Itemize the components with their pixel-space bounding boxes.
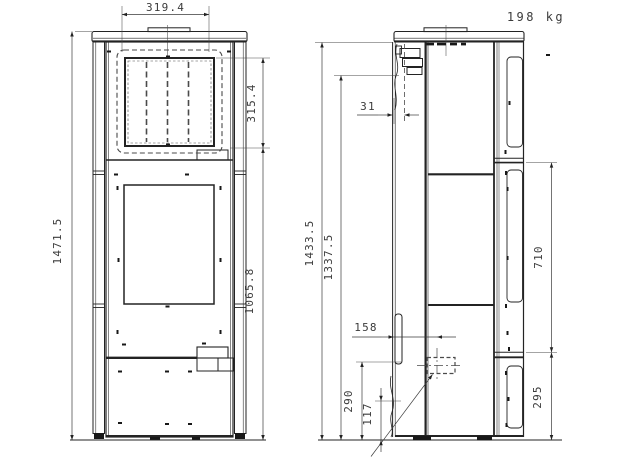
front-right-foot [235, 433, 245, 439]
front-dimensions: 319.4 315.4 1065.8 1471.5 [51, 1, 270, 440]
rear-connector-mid [403, 59, 423, 67]
front-glass-window [125, 58, 214, 146]
dim-side-body-height: 1433.5 [303, 220, 316, 267]
dim-front-overall-height: 1471.5 [51, 218, 64, 265]
front-view [70, 25, 266, 440]
rear-duct [395, 314, 402, 364]
technical-drawing-sheet: 319.4 315.4 1065.8 1471.5 [0, 0, 624, 460]
rear-connector-bottom [407, 68, 422, 75]
front-door-panel [124, 185, 214, 304]
dim-side-flue-height: 1337.5 [322, 234, 335, 281]
front-latch-detail [197, 347, 228, 358]
front-left-foot [94, 433, 104, 439]
dim-side-flue-offset: 31 [360, 100, 376, 113]
dim-front-glass-height: 315.4 [245, 83, 258, 122]
leader-line [371, 375, 433, 457]
dim-side-panel-upper: 710 [532, 245, 545, 268]
dim-side-panel-lower: 295 [531, 385, 544, 408]
side-dimensions: 1433.5 1337.5 31 158 290 117 710 295 [303, 43, 557, 453]
dim-side-inlet-height: 117 [361, 402, 374, 425]
front-left-column [93, 42, 105, 434]
side-foot-rear [413, 436, 431, 441]
stove-dimension-drawing: 319.4 315.4 1065.8 1471.5 [0, 0, 624, 460]
dim-side-air-offset: 158 [354, 321, 377, 334]
front-window-hidden-outline [117, 50, 222, 153]
dim-front-lower-height: 1065.8 [243, 268, 256, 315]
dim-front-top-width: 319.4 [146, 1, 185, 14]
dim-side-air-height: 290 [342, 389, 355, 412]
rear-connector-top [400, 49, 420, 58]
weight-label: 198 kg [507, 10, 565, 24]
side-foot-front [477, 436, 492, 441]
